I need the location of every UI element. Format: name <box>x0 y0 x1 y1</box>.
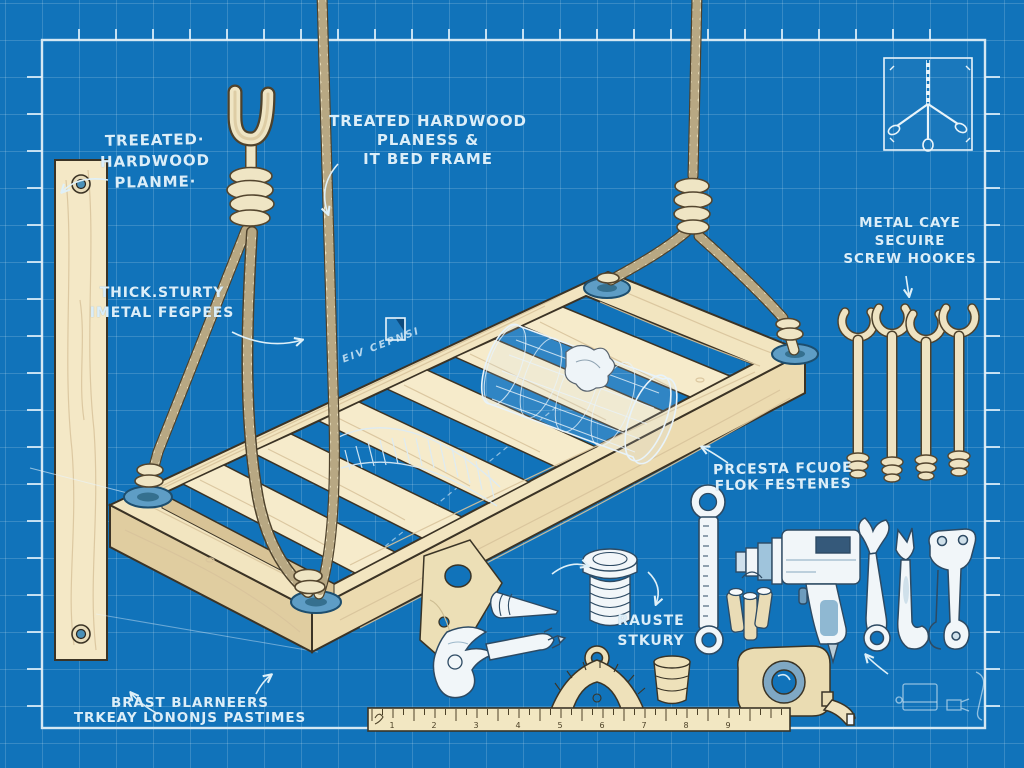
box-wrench-icon <box>691 485 725 654</box>
ruler-number: 9 <box>725 721 730 730</box>
cone-tip-icon <box>491 592 558 618</box>
ruler-number: 5 <box>557 721 562 730</box>
blueprint-canvas: 1 2 3 4 5 6 7 8 9 TREEATED· HARDWOOD PLA… <box>0 0 1024 768</box>
label-bed-frame: TREATED HARDWOOD PLANESS & IT BED FRAME <box>329 112 527 169</box>
ruler-number: 7 <box>641 721 646 730</box>
ruler-number: 3 <box>473 721 478 730</box>
bone-wrench-icon <box>929 529 976 649</box>
label-rope: THICK.STURTY IMETAL FEGPEES <box>90 283 235 323</box>
suspension-hook-icon <box>235 92 268 139</box>
label-line: STKURY <box>617 631 684 651</box>
label-line: TREATED HARDWOOD <box>329 112 527 131</box>
label-line: THICK.STURTY <box>90 283 235 303</box>
screw-hook-icon <box>842 312 874 478</box>
screw-hook-icon <box>876 308 908 482</box>
label-line: HARDWOOD <box>100 150 210 173</box>
wood-plank <box>55 160 107 660</box>
label-line: BRAST BLARNEERS <box>74 696 306 711</box>
label-line: FLOK FESTENES <box>713 476 853 494</box>
label-plank: TREEATED· HARDWOOD PLANME· <box>100 129 211 194</box>
label-line: SECUIRE <box>843 232 976 250</box>
label-line: PLANME· <box>100 171 210 194</box>
ruler-number: 2 <box>431 721 436 730</box>
sketch-doodles <box>896 672 984 720</box>
screw-hook-icon <box>910 314 942 480</box>
bit-bundle-icon <box>726 572 772 640</box>
label-line: PLANESS & <box>329 131 527 150</box>
label-line: TRKEAY LONONJS PASTIMES <box>74 711 306 726</box>
label-line: SCREW HOOKES <box>843 250 976 268</box>
ruler-number: 4 <box>515 721 520 730</box>
label-bolt: RAUSTE STKURY <box>617 611 684 651</box>
label-screw-hooks: METAL CAYE SECUIRE SCREW HOOKES <box>843 214 976 268</box>
label-line: RAUSTE <box>617 611 684 631</box>
rope-vertical <box>319 0 334 594</box>
screw-hooks <box>842 308 975 482</box>
ruler-number: 6 <box>599 721 604 730</box>
label-line: TREEATED· <box>100 129 210 152</box>
label-line: IMETAL FEGPEES <box>90 303 235 323</box>
label-line: IT BED FRAME <box>329 150 527 169</box>
label-fasteners: PRCESTA FCUOE FLOK FESTENES <box>713 460 853 494</box>
protractor-icon <box>550 646 645 712</box>
thimble-icon <box>654 656 690 704</box>
ruler-icon: 1 2 3 4 5 6 7 8 9 <box>368 708 790 731</box>
label-hardware: BRAST BLARNEERS TRKEAY LONONJS PASTIMES <box>74 696 306 726</box>
rope-left-diagonal <box>150 230 246 482</box>
hook-wrench-icon <box>896 528 928 649</box>
screw-hook-icon <box>943 308 975 476</box>
ruler-number: 1 <box>389 721 394 730</box>
open-wrench-icon <box>859 518 890 651</box>
ruler-number: 8 <box>683 721 688 730</box>
claw-tool-icon <box>433 627 565 698</box>
label-line: METAL CAYE <box>843 214 976 232</box>
detail-inset <box>884 58 972 151</box>
